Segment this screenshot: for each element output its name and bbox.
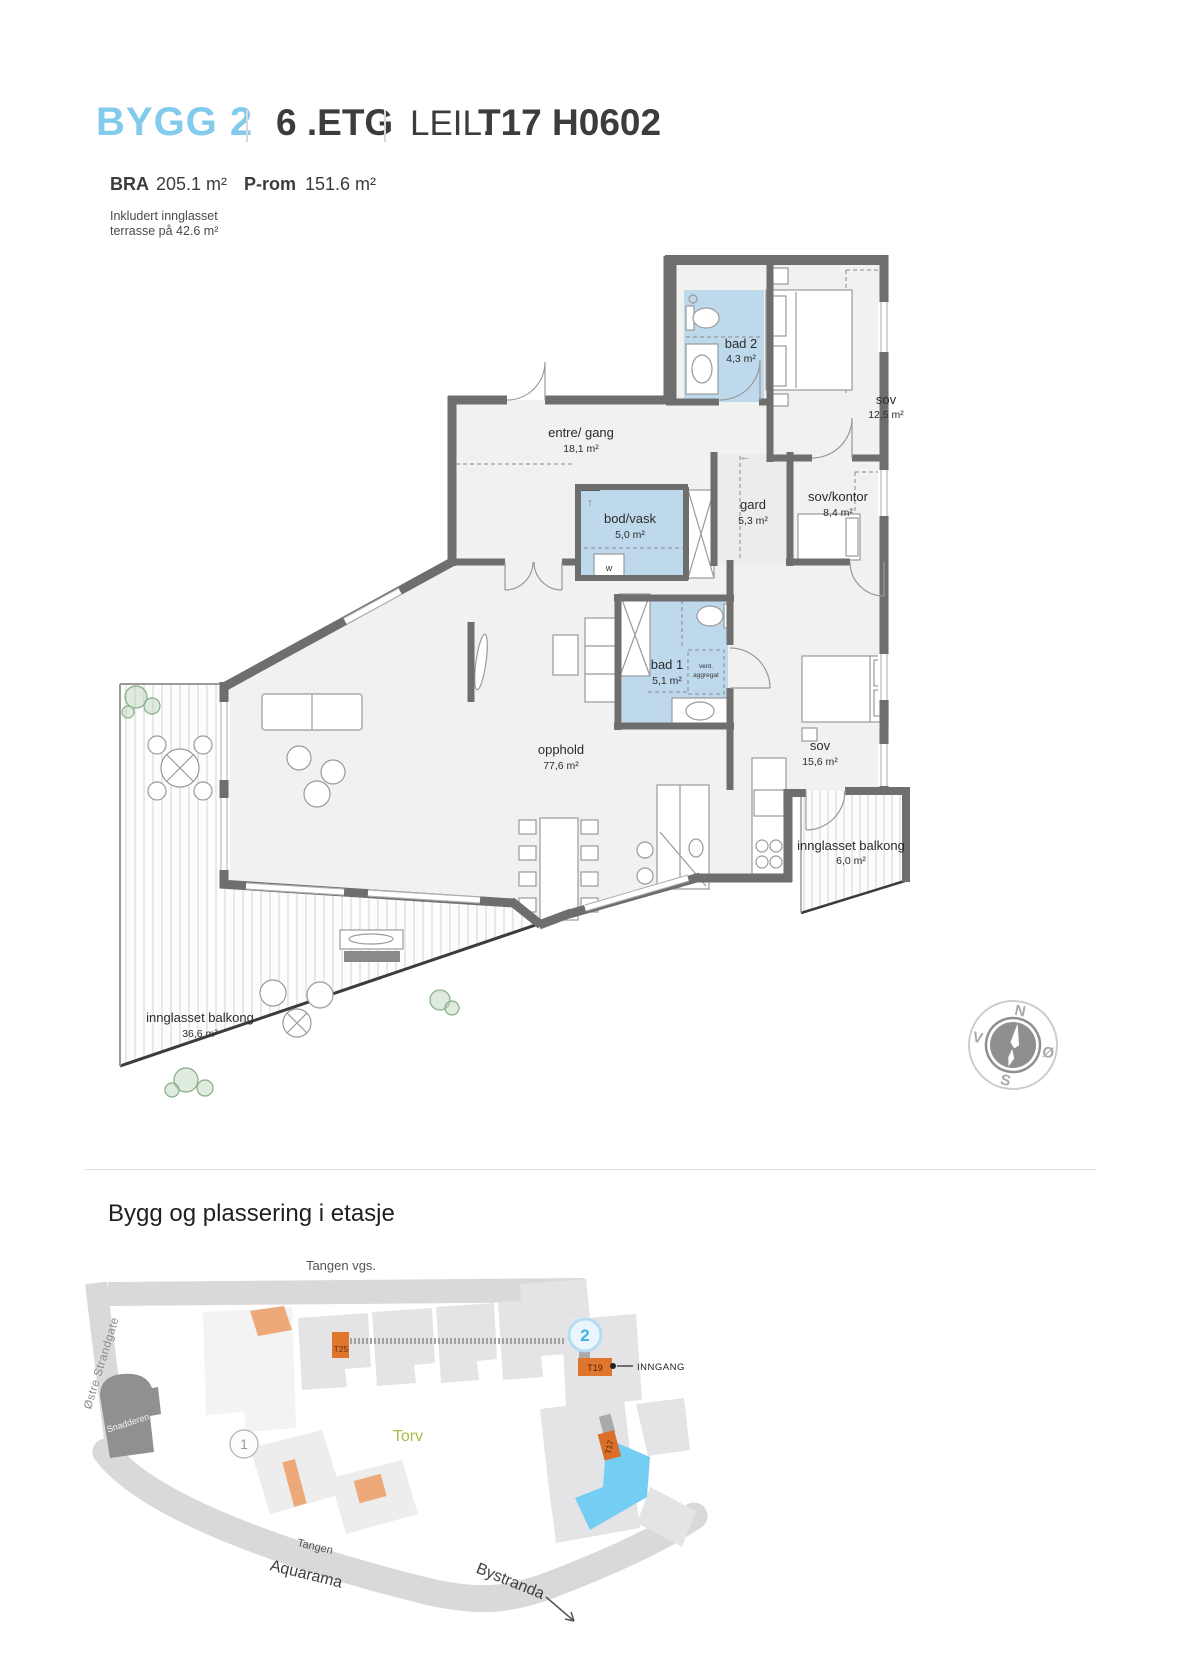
snadderen-building <box>100 1374 161 1458</box>
arrow-up-glyph: ↑ <box>587 497 593 509</box>
room-area-sov-kontor: 8,4 m² <box>823 507 853 519</box>
room-area-gard: 5,3 m² <box>738 515 768 527</box>
building-2-label: 2 <box>580 1326 589 1345</box>
room-area-opphold: 77,6 m² <box>543 760 579 772</box>
room-area-bad-2: 4,3 m² <box>726 353 756 365</box>
floorplan: bad 2 4,3 m² sov 12,5 m² entre/ gang 18,… <box>120 255 910 1097</box>
room-label-sov-15: sov <box>810 738 831 753</box>
inngang-dot <box>610 1363 616 1369</box>
map-buildings-low <box>250 1430 418 1534</box>
room-area-sov-12: 12,5 m² <box>868 409 904 421</box>
t19-label: T19 <box>587 1363 603 1373</box>
terrace-bench <box>344 951 400 962</box>
building-1-label: 1 <box>240 1436 248 1452</box>
street-label-tangen-vgs: Tangen vgs. <box>306 1258 376 1273</box>
room-label-balkong-36: innglasset balkong <box>146 1010 254 1025</box>
place-label-torv: Torv <box>393 1428 423 1445</box>
room-area-balkong-36: 36,6 m² <box>182 1028 218 1040</box>
bystranda-arrow-icon <box>546 1597 574 1621</box>
arrow-left-glyph: ← <box>740 451 751 463</box>
vent-label-line1: vent. <box>699 663 713 670</box>
room-label-bad-1: bad 1 <box>651 657 684 672</box>
floorplan-canvas: bad 2 4,3 m² sov 12,5 m² entre/ gang 18,… <box>0 0 1180 1669</box>
room-label-sov-12: sov <box>876 392 897 407</box>
room-label-bad-2: bad 2 <box>725 336 758 351</box>
room-area-bod: 5,0 m² <box>615 529 645 541</box>
room-area-entre: 18,1 m² <box>563 443 599 455</box>
room-label-balkong-6: innglasset balkong <box>797 838 905 853</box>
room-label-gard: gard <box>740 497 766 512</box>
room-area-sov-15: 15,6 m² <box>802 756 838 768</box>
room-label-opphold: opphold <box>538 742 584 757</box>
room-area-bad-1: 5,1 m² <box>652 675 682 687</box>
sitemap: Tangen vgs. Østre Strandgate Snadderen T… <box>82 1258 696 1621</box>
room-label-entre: entre/ gang <box>548 425 614 440</box>
room-area-balkong-6: 6,0 m² <box>836 855 866 867</box>
vent-label-line2: aggregat <box>693 672 719 679</box>
washer-label: w <box>605 563 613 573</box>
compass: N Ø S V <box>961 993 1066 1098</box>
inngang-label: INNGANG <box>637 1362 685 1373</box>
room-label-sov-kontor: sov/kontor <box>808 489 869 504</box>
room-label-bod: bod/vask <box>604 511 657 526</box>
t25-label: T25 <box>334 1344 349 1354</box>
